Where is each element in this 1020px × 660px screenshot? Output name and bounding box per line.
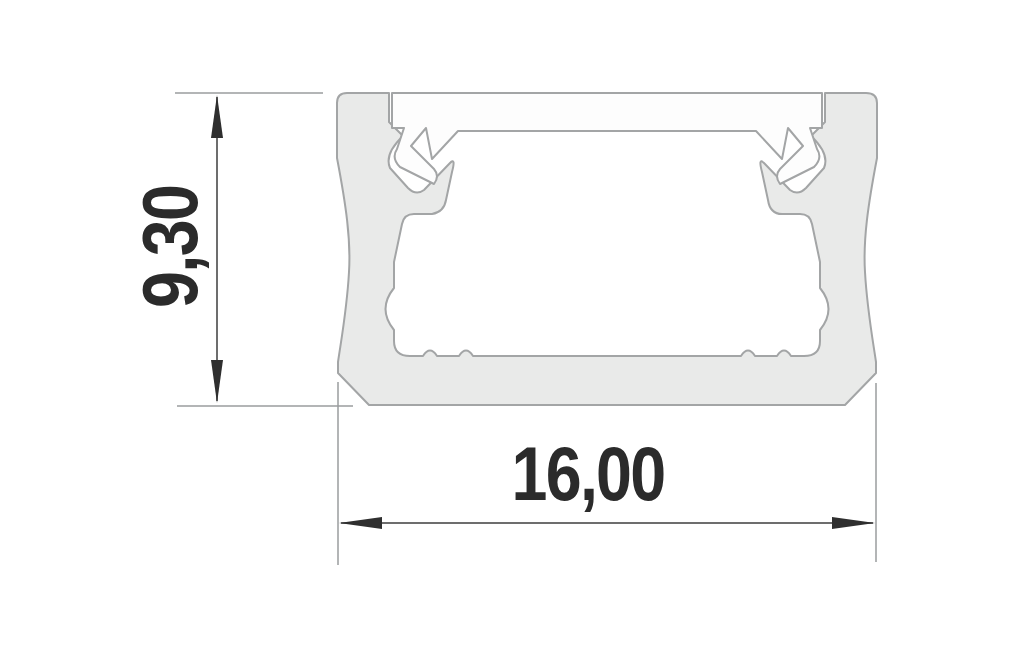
profile-cover-shape [392, 93, 822, 184]
profile-drawing-canvas: 9,30 16,00 [0, 0, 1020, 660]
width-arrow-left-icon [339, 517, 382, 529]
height-arrow-up-icon [211, 95, 223, 138]
height-arrow-down-icon [211, 360, 223, 403]
width-arrow-right-icon [832, 517, 875, 529]
height-dimension-label: 9,30 [131, 186, 209, 308]
profile-body-shape [337, 93, 877, 405]
cross-section-drawing [0, 0, 1020, 660]
width-dimension-label: 16,00 [511, 436, 664, 512]
